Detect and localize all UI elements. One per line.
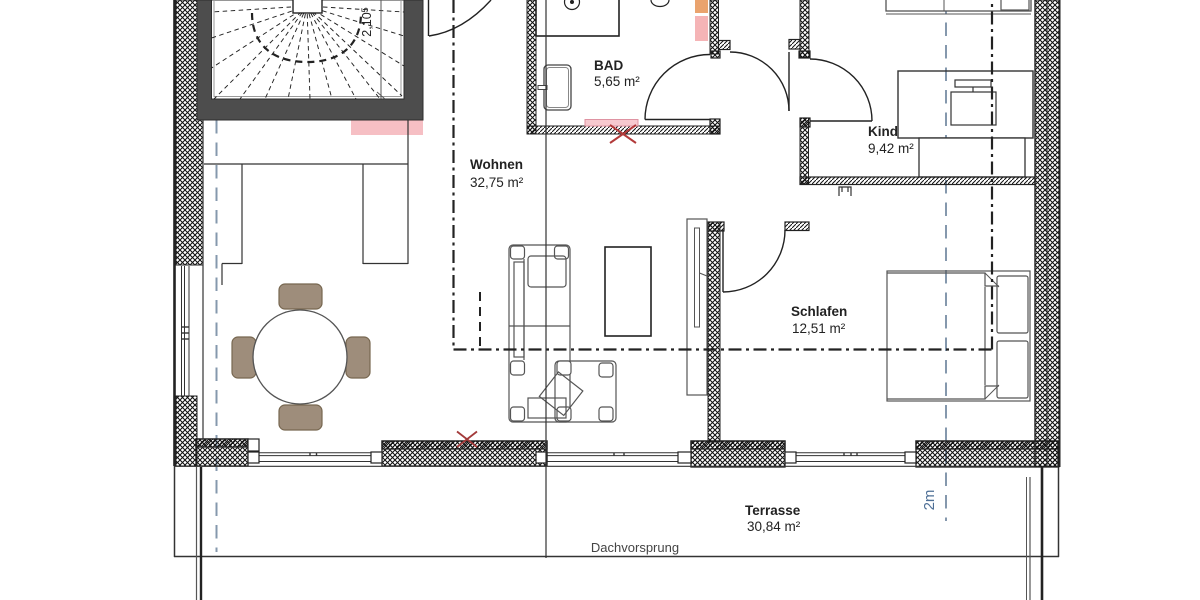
svg-text:Schlafen: Schlafen [791,304,847,319]
svg-text:30,84 m²: 30,84 m² [747,519,801,534]
svg-text:Kind: Kind [868,124,898,139]
svg-text:Dachvorsprung: Dachvorsprung [591,540,679,555]
svg-text:9,42 m²: 9,42 m² [868,141,914,156]
svg-text:BAD: BAD [594,58,623,73]
svg-text:32,75 m²: 32,75 m² [470,175,524,190]
svg-text:5,65 m²: 5,65 m² [594,74,640,89]
svg-text:12,51 m²: 12,51 m² [792,321,846,336]
svg-text:Wohnen: Wohnen [470,157,523,172]
svg-text:2m: 2m [921,490,938,511]
svg-text:Terrasse: Terrasse [745,503,801,518]
